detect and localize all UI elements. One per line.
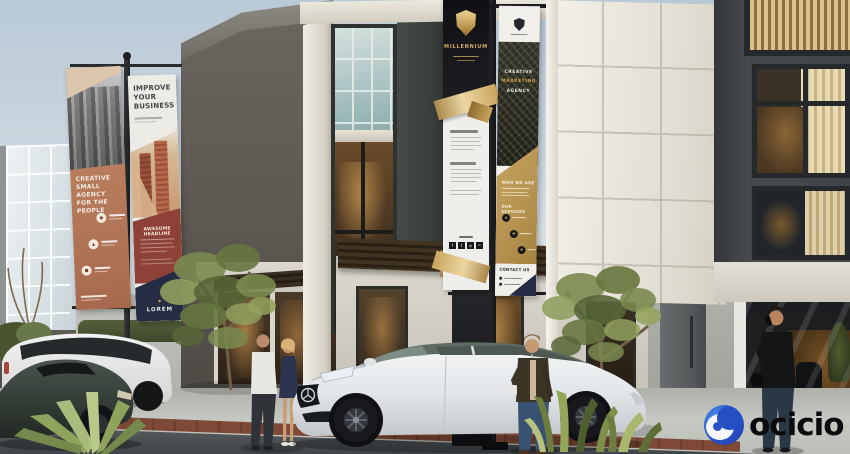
street-scene: CREATIVE SMALL AGENCY FOR THE PEOPLE ● ▲… [0, 0, 850, 454]
coffee-cup [509, 385, 517, 395]
man-white-shirt [251, 331, 277, 450]
scene-objects [0, 0, 850, 454]
globe-dot [713, 422, 722, 431]
tree-foliage [160, 244, 276, 349]
woman-leg [283, 398, 287, 441]
watermark-brand: ocicio [749, 405, 844, 445]
watermark: ocicio [704, 402, 850, 448]
woman-navy-dress [279, 338, 299, 446]
phone-man-bag [750, 373, 764, 387]
cup-man-shirt [530, 360, 536, 400]
man-trousers [251, 394, 276, 446]
tree-foliage [542, 266, 661, 362]
woman-dress [279, 356, 299, 398]
car-mirror [364, 358, 376, 366]
ocicio-globe-icon [704, 405, 744, 445]
man-shirt [251, 352, 277, 394]
suv-wheel [133, 381, 163, 411]
suv-taillight [4, 362, 9, 374]
